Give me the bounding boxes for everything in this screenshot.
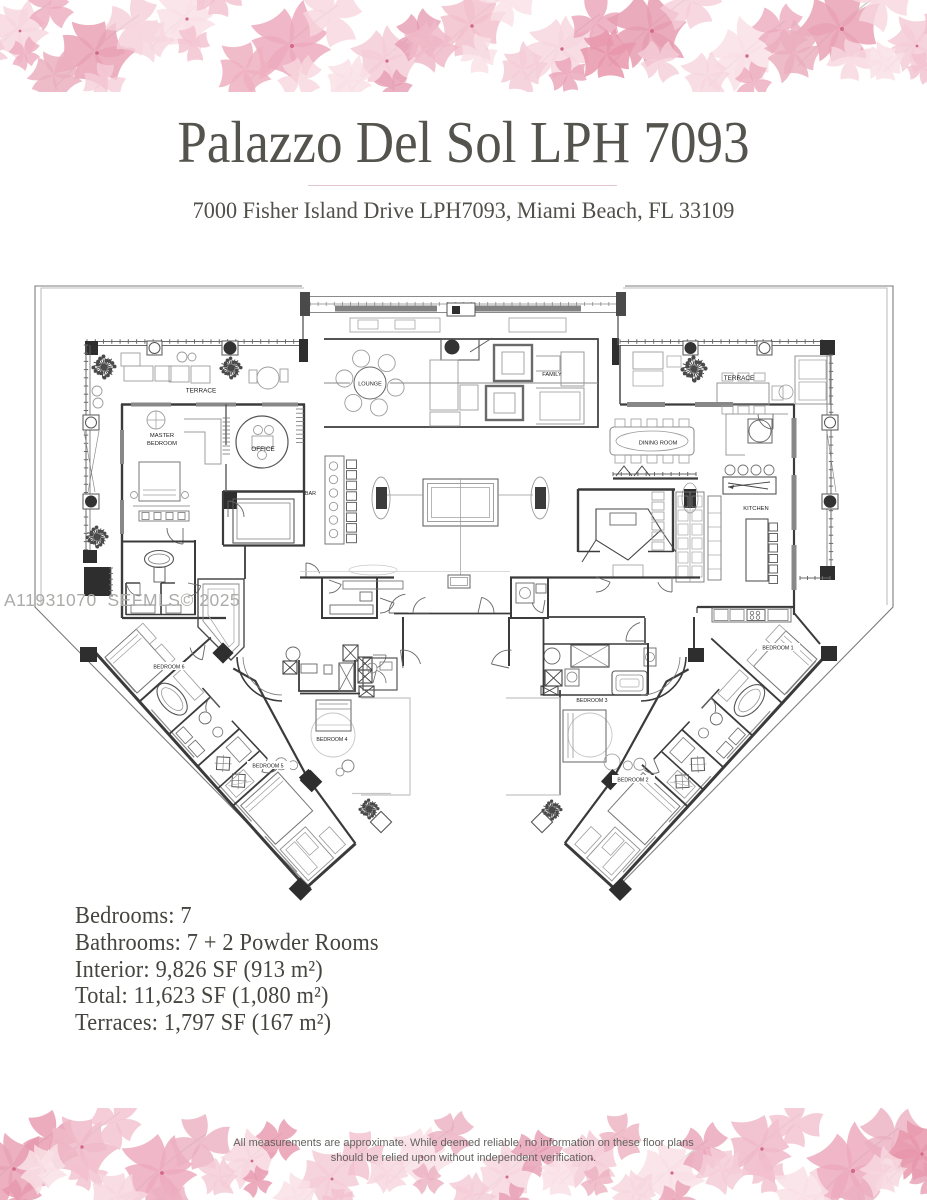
svg-text:KITCHEN: KITCHEN [743, 506, 768, 512]
svg-text:BEDROOM 1: BEDROOM 1 [762, 646, 793, 652]
svg-text:MASTER: MASTER [150, 433, 174, 439]
svg-text:FAMILY: FAMILY [542, 372, 562, 378]
svg-text:BEDROOM: BEDROOM [147, 441, 177, 447]
svg-text:TERRACE: TERRACE [724, 375, 755, 382]
svg-text:LOUNGE: LOUNGE [358, 382, 382, 388]
svg-text:BEDROOM 4: BEDROOM 4 [316, 737, 347, 743]
svg-text:BEDROOM 3: BEDROOM 3 [576, 698, 607, 704]
svg-text:DINING ROOM: DINING ROOM [639, 441, 678, 447]
svg-text:OFFICE: OFFICE [251, 446, 274, 453]
svg-text:BAR: BAR [305, 491, 316, 497]
svg-text:BEDROOM 6: BEDROOM 6 [153, 665, 184, 671]
svg-text:BEDROOM 2: BEDROOM 2 [617, 778, 648, 784]
svg-text:TERRACE: TERRACE [186, 388, 217, 395]
svg-text:BEDROOM 5: BEDROOM 5 [252, 764, 283, 770]
